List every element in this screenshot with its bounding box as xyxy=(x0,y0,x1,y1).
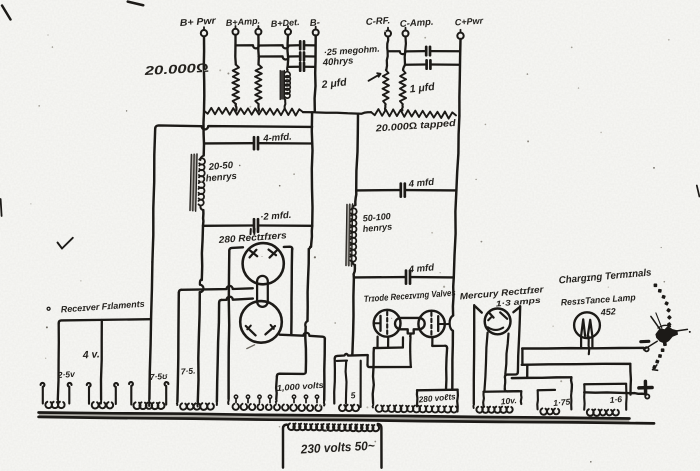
svg-text:4 mfd: 4 mfd xyxy=(407,177,434,190)
svg-text:B-: B- xyxy=(309,17,320,29)
svg-text:4 mfd: 4 mfd xyxy=(407,262,434,275)
svg-text:4-mfd.: 4-mfd. xyxy=(262,132,292,145)
svg-text:·2 mfd.: ·2 mfd. xyxy=(260,210,292,223)
svg-text:C-RF.: C-RF. xyxy=(365,15,390,28)
svg-text:10v.: 10v. xyxy=(500,395,517,406)
svg-text:40hrys: 40hrys xyxy=(321,55,353,68)
svg-text:7·5.: 7·5. xyxy=(180,365,195,376)
svg-text:B+Det.: B+Det. xyxy=(270,17,299,29)
svg-text:452: 452 xyxy=(599,306,616,317)
svg-text:2·5v: 2·5v xyxy=(56,369,76,380)
svg-text:C+Pwr: C+Pwr xyxy=(454,16,483,28)
svg-text:7·5ʊ: 7·5ʊ xyxy=(149,371,168,382)
svg-text:4 v.: 4 v. xyxy=(81,348,100,361)
svg-text:1·6: 1·6 xyxy=(609,394,622,405)
svg-text:1·75: 1·75 xyxy=(553,397,571,408)
svg-text:C-Amp.: C-Amp. xyxy=(399,17,433,30)
